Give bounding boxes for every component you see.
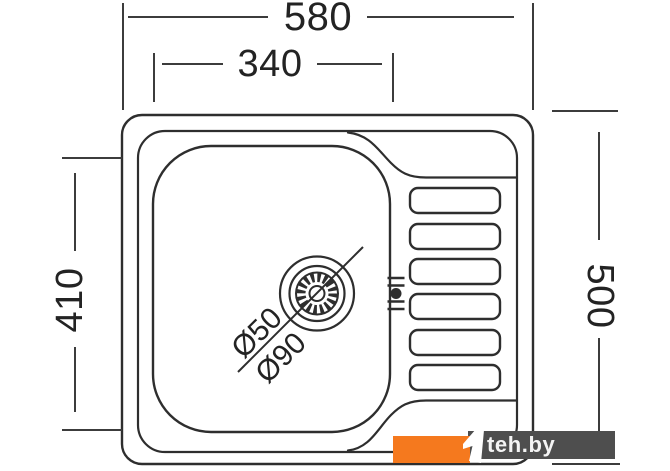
bowl-depth-label: 410 — [49, 268, 91, 333]
drainboard-ridge — [410, 365, 500, 390]
drainboard-ridge — [410, 330, 500, 355]
overall-depth-label: 500 — [579, 264, 621, 329]
sink-inner-rim — [138, 131, 517, 452]
bowl-width-label: 340 — [238, 43, 303, 85]
watermark-accent-block — [393, 436, 470, 463]
drainboard-ridge — [410, 188, 500, 213]
drawing-canvas: Ø50 Ø90 580 340 410 500 teh.by — [0, 0, 670, 471]
sink-outer-rim — [122, 115, 533, 464]
drainboard-ridge — [410, 224, 500, 249]
sink-outline-group — [122, 115, 533, 464]
drainboard-ridges — [410, 188, 500, 390]
watermark-site-label: teh.by — [487, 432, 556, 457]
sink-technical-drawing: Ø50 Ø90 580 340 410 500 teh.by — [0, 0, 670, 471]
drainboard-top-divider — [348, 133, 516, 178]
drainboard-ridge — [410, 259, 500, 284]
watermark-logo: teh.by — [393, 429, 615, 463]
overflow-dot-icon — [391, 288, 402, 299]
drainboard-ridge — [410, 294, 500, 319]
overall-width-label: 580 — [284, 0, 352, 39]
